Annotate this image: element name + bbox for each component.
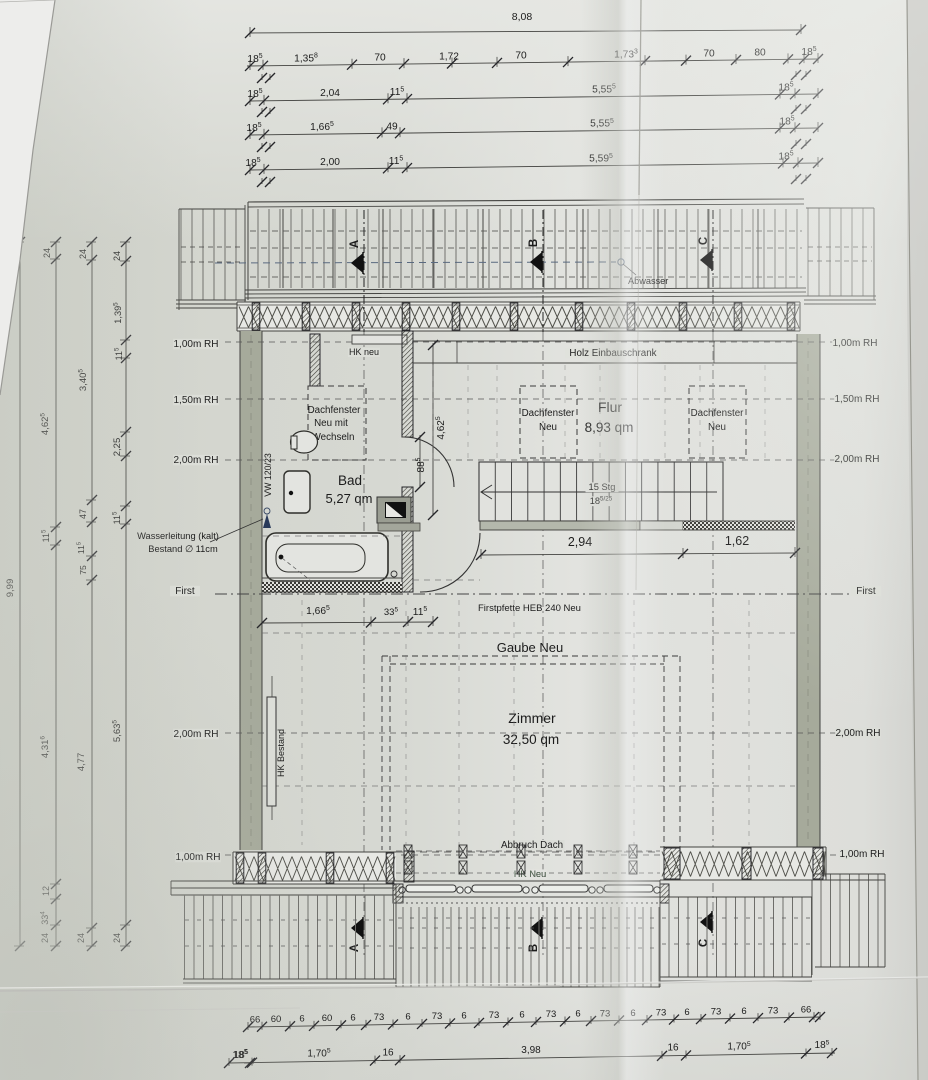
svg-text:73: 73 <box>711 1006 722 1017</box>
svg-text:16: 16 <box>667 1043 679 1054</box>
svg-text:HK neu: HK neu <box>349 347 379 357</box>
svg-text:8,08: 8,08 <box>512 11 533 23</box>
svg-text:6: 6 <box>461 1011 466 1022</box>
svg-text:Neu: Neu <box>539 422 557 433</box>
svg-text:6: 6 <box>575 1009 580 1020</box>
svg-text:73: 73 <box>546 1009 557 1020</box>
svg-text:Abbruch Dach: Abbruch Dach <box>501 840 563 851</box>
svg-text:Zimmer: Zimmer <box>508 710 556 726</box>
svg-text:3,98: 3,98 <box>521 1045 541 1056</box>
svg-text:6: 6 <box>519 1010 524 1021</box>
svg-text:66: 66 <box>801 1005 812 1016</box>
svg-text:73: 73 <box>489 1010 500 1021</box>
svg-text:A: A <box>349 240 361 248</box>
svg-text:2,00: 2,00 <box>320 157 340 168</box>
svg-text:1,72: 1,72 <box>439 52 459 63</box>
svg-text:B: B <box>528 239 540 247</box>
svg-text:2,04: 2,04 <box>320 88 340 99</box>
svg-text:32,50 qm: 32,50 qm <box>503 732 559 747</box>
svg-text:70: 70 <box>374 52 386 63</box>
svg-text:49: 49 <box>386 121 398 132</box>
svg-text:1,00m RH: 1,00m RH <box>839 849 884 860</box>
svg-text:73: 73 <box>768 1005 779 1016</box>
svg-text:70: 70 <box>515 51 527 62</box>
svg-text:6: 6 <box>741 1006 746 1017</box>
svg-text:6: 6 <box>684 1007 689 1018</box>
svg-text:Gaube Neu: Gaube Neu <box>497 640 564 655</box>
